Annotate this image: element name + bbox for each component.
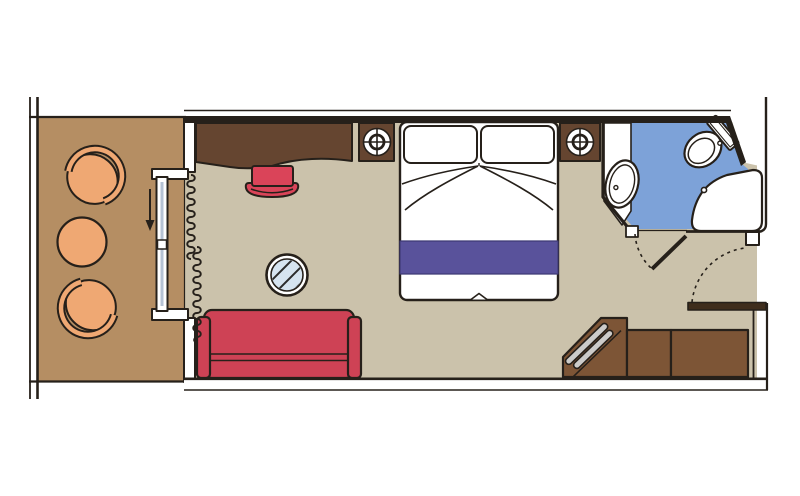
door-handle — [158, 240, 167, 249]
sofa — [197, 310, 361, 378]
double-bed — [400, 122, 558, 300]
sofa-arm-left — [197, 317, 210, 378]
desk-stool — [246, 166, 298, 197]
pillow-left — [404, 126, 477, 163]
floor-plan — [0, 0, 800, 496]
wardrobe-left — [627, 330, 671, 377]
stool-seat — [252, 166, 293, 186]
wardrobe-right — [671, 330, 748, 377]
shower-drain — [701, 187, 706, 192]
reading-lamp-icon-right — [567, 129, 594, 156]
bottom-wall-band — [184, 379, 768, 390]
pillow-right — [481, 126, 554, 163]
sofa-body — [204, 310, 354, 378]
washbasin-drain — [613, 185, 618, 190]
entrance-jamb — [746, 232, 759, 245]
sofa-arm-right — [348, 317, 361, 378]
reading-lamp-icon-left — [364, 129, 391, 156]
left-wall-upper — [184, 117, 195, 172]
bathroom-door-jamb — [626, 226, 638, 237]
bed-runner — [400, 241, 558, 274]
entrance-door-leaf — [688, 303, 766, 311]
balcony-round-table — [58, 218, 107, 267]
